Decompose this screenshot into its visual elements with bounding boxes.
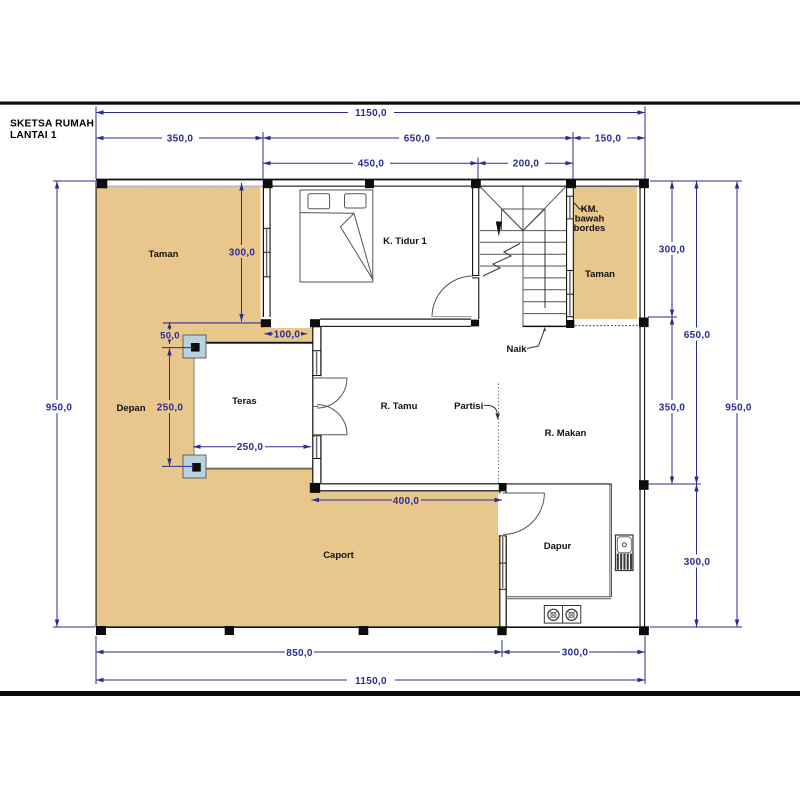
svg-text:350,0: 350,0 (659, 403, 686, 414)
svg-text:100,0: 100,0 (274, 329, 301, 340)
svg-text:bordes: bordes (574, 223, 606, 234)
svg-text:K. Tidur 1: K. Tidur 1 (383, 236, 427, 247)
svg-text:850,0: 850,0 (286, 648, 313, 659)
svg-text:300,0: 300,0 (562, 648, 589, 659)
svg-text:1150,0: 1150,0 (355, 676, 387, 687)
svg-text:400,0: 400,0 (393, 496, 420, 507)
svg-text:450,0: 450,0 (358, 159, 385, 170)
svg-text:950,0: 950,0 (46, 403, 73, 414)
svg-text:Teras: Teras (232, 396, 257, 407)
svg-text:R. Makan: R. Makan (545, 428, 587, 439)
svg-text:50,0: 50,0 (160, 330, 180, 341)
svg-text:300,0: 300,0 (684, 557, 711, 568)
svg-text:1150,0: 1150,0 (355, 108, 387, 119)
svg-text:200,0: 200,0 (513, 159, 540, 170)
svg-text:650,0: 650,0 (404, 134, 431, 145)
svg-text:R. Tamu: R. Tamu (381, 401, 418, 412)
svg-text:250,0: 250,0 (157, 403, 184, 414)
svg-text:Taman: Taman (585, 269, 615, 280)
svg-text:LANTAI 1: LANTAI 1 (10, 130, 57, 141)
svg-text:300,0: 300,0 (659, 245, 686, 256)
svg-text:SKETSA RUMAH: SKETSA RUMAH (10, 118, 94, 129)
svg-text:Dapur: Dapur (544, 541, 572, 552)
svg-text:Partisi: Partisi (454, 401, 483, 412)
svg-text:300,0: 300,0 (229, 248, 256, 259)
svg-text:150,0: 150,0 (595, 134, 622, 145)
svg-text:950,0: 950,0 (725, 403, 752, 414)
svg-text:Depan: Depan (116, 403, 145, 414)
svg-text:650,0: 650,0 (684, 330, 711, 341)
svg-text:Naik: Naik (506, 344, 527, 355)
svg-text:Taman: Taman (149, 249, 179, 260)
svg-text:Caport: Caport (323, 550, 354, 561)
svg-text:250,0: 250,0 (237, 442, 264, 453)
svg-text:350,0: 350,0 (167, 134, 194, 145)
